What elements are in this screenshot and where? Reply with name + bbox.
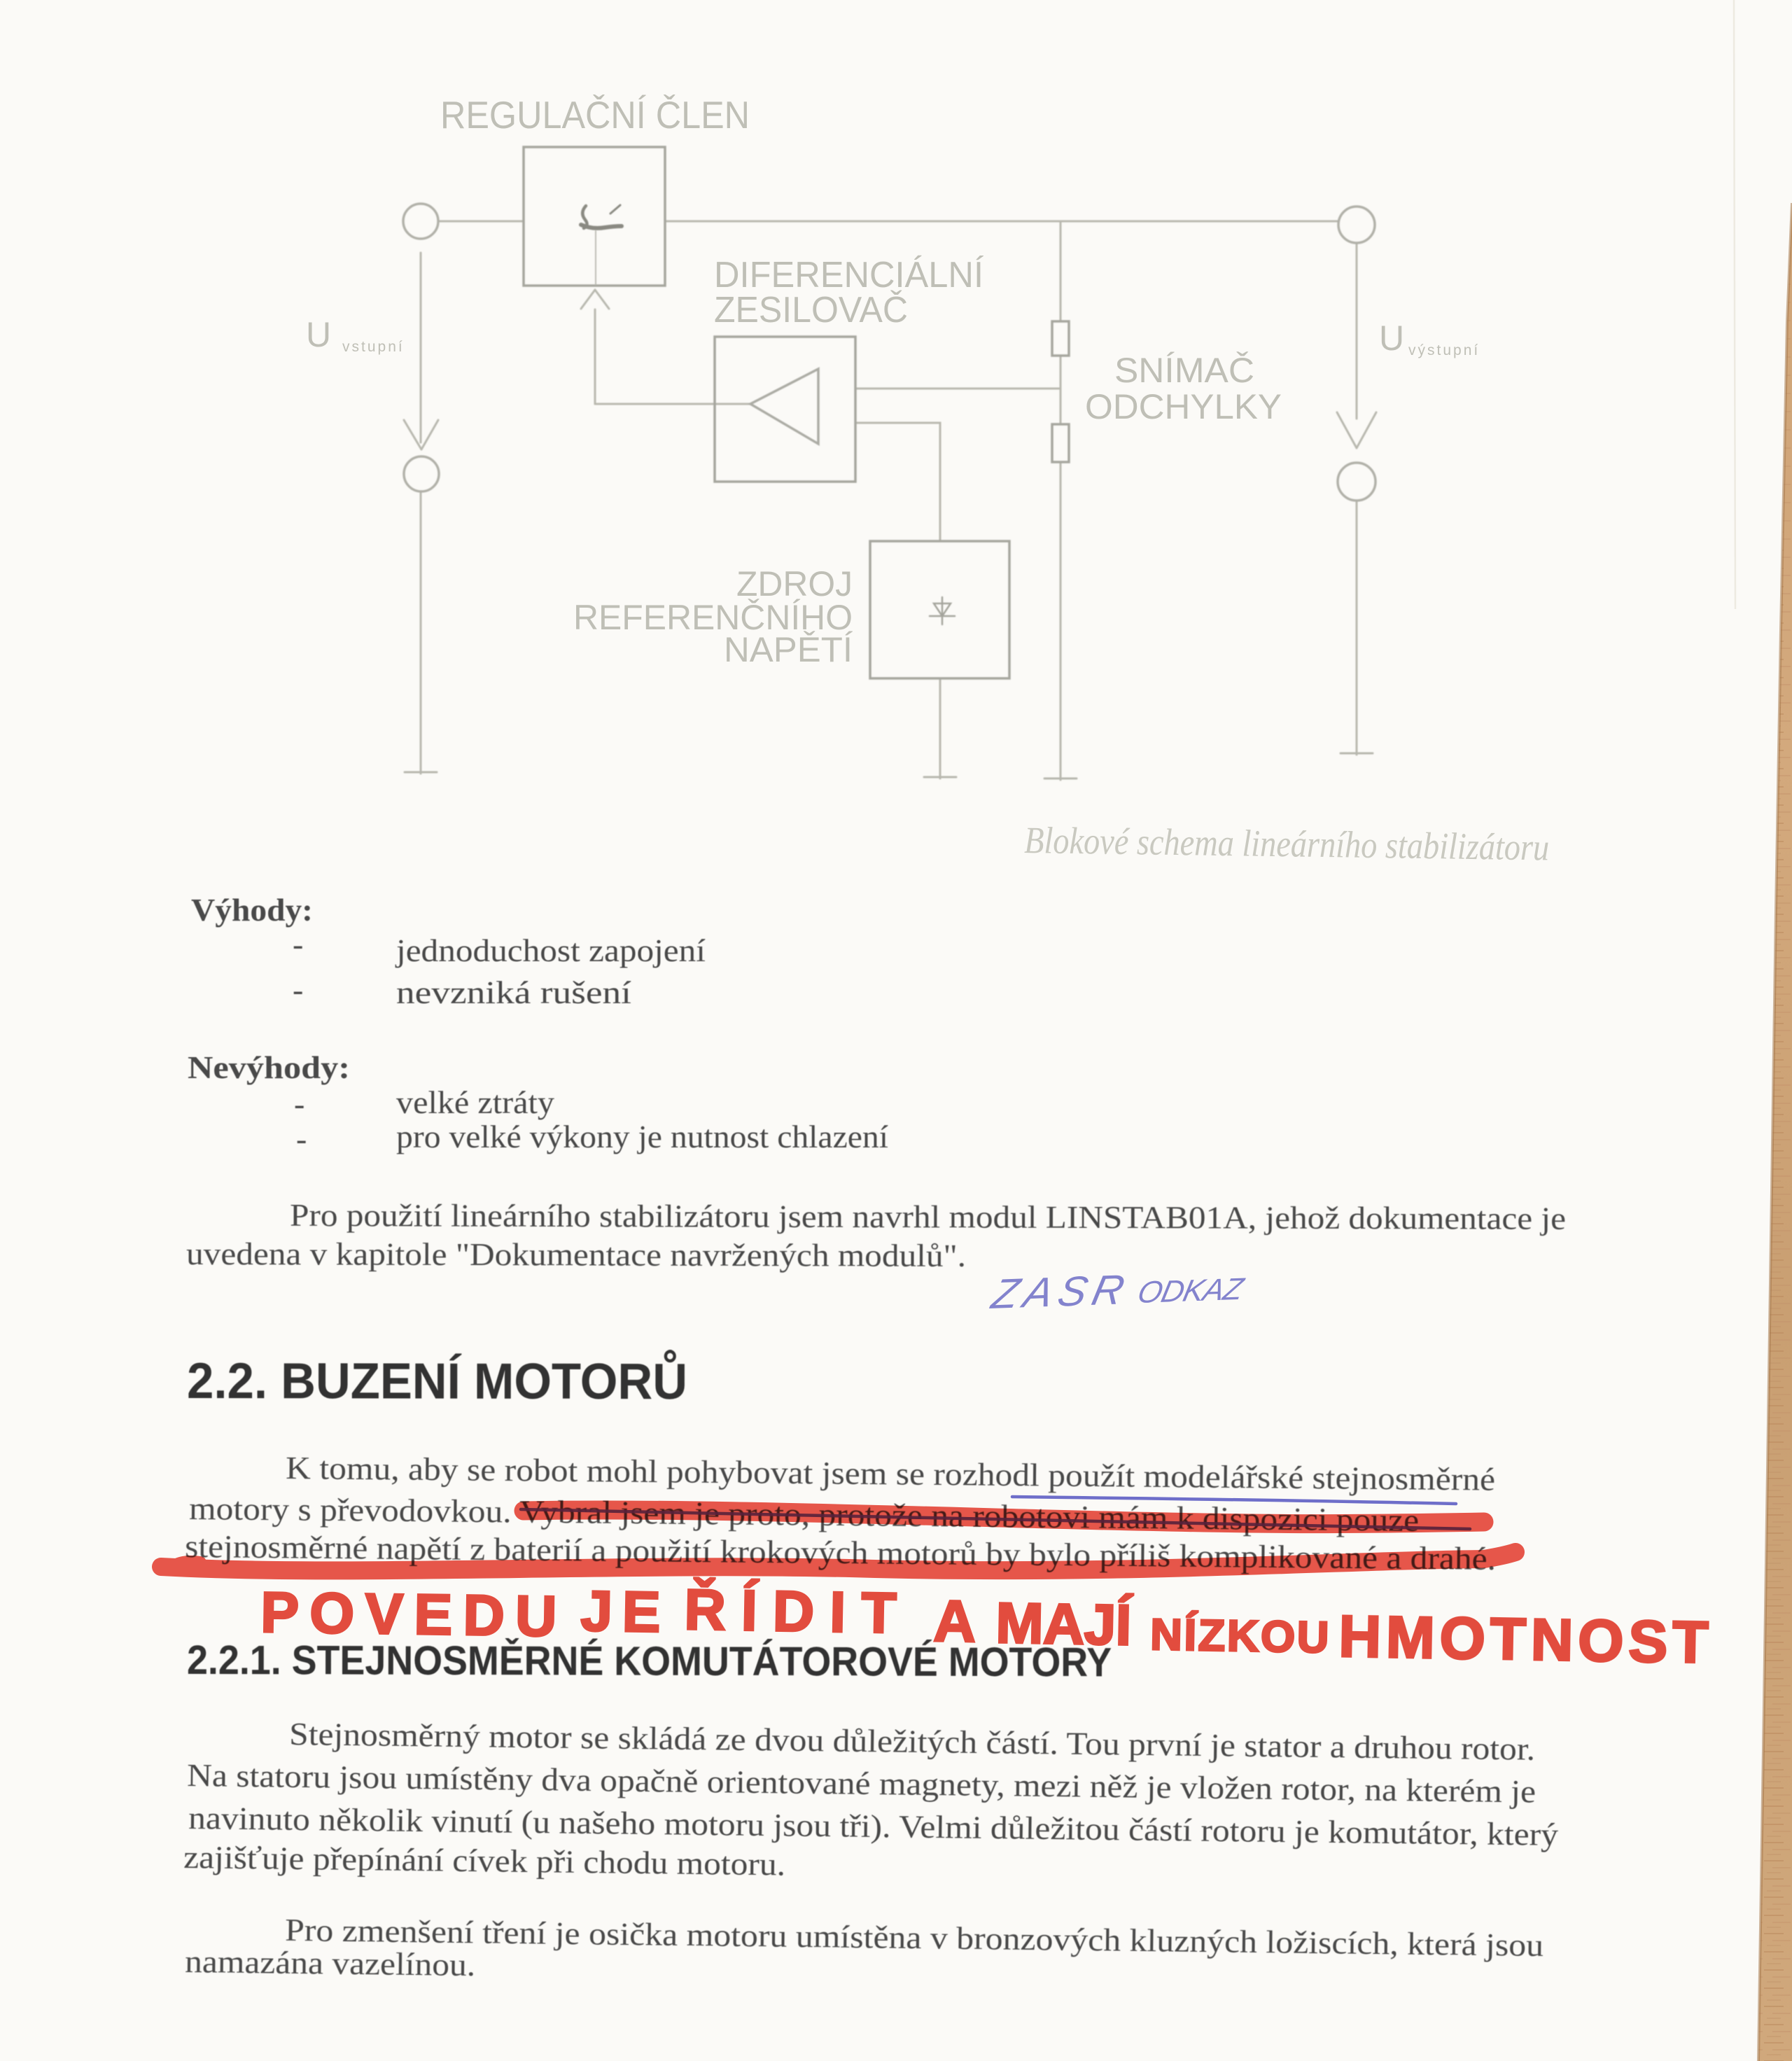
svg-text:vstupní: vstupní [342,339,405,355]
svg-text:pro velké výkony je nutnost ch: pro velké výkony je nutnost chlazení [396,1119,888,1154]
svg-text:-: - [296,1121,307,1157]
svg-text:MAJÍ: MAJÍ [995,1591,1134,1657]
svg-text:-: - [293,926,303,962]
svg-text:Pro použití lineárního stabili: Pro použití lineárního stabilizátoru jse… [290,1197,1566,1236]
svg-text:ODKAZ: ODKAZ [1135,1272,1247,1309]
svg-text:uvedena v kapitole "Dokumentac: uvedena v kapitole "Dokumentace navržený… [186,1236,966,1273]
svg-text:U: U [1379,319,1404,358]
svg-text:2.2. BUZENÍ MOTORŮ: 2.2. BUZENÍ MOTORŮ [187,1349,687,1410]
svg-text:Blokové schema lineárního stab: Blokové schema lineárního stabilizátoru [1024,819,1550,868]
svg-text:Výhody:: Výhody: [191,892,313,928]
svg-text:ZESILOVAČ: ZESILOVAČ [714,290,908,330]
svg-text:HMOTNOST: HMOTNOST [1338,1603,1709,1675]
svg-text:U: U [306,315,331,354]
svg-text:-: - [294,1086,304,1122]
svg-text:velké ztráty: velké ztráty [396,1084,554,1120]
svg-text:NAPĚTÍ: NAPĚTÍ [724,630,853,669]
svg-text:A: A [933,1588,976,1654]
svg-text:NÍZKOU: NÍZKOU [1150,1610,1329,1662]
svg-text:namazána vazelínou.: namazána vazelínou. [185,1943,476,1983]
svg-text:ŘÍDIT: ŘÍDIT [684,1578,897,1645]
svg-text:výstupní: výstupní [1408,342,1480,358]
svg-text:zajišťuje přepínání cívek při: zajišťuje přepínání cívek při chodu moto… [183,1839,786,1882]
svg-text:Nevýhody:: Nevýhody: [188,1049,350,1085]
svg-text:REGULAČNÍ ČLEN: REGULAČNÍ ČLEN [440,93,750,137]
svg-text:-: - [293,972,303,1007]
svg-text:jednoduchost zapojení: jednoduchost zapojení [395,932,706,968]
svg-text:nevzniká rušení: nevzniká rušení [396,974,631,1010]
svg-text:ODCHYLKY: ODCHYLKY [1085,387,1282,426]
svg-text:SNÍMAČ: SNÍMAČ [1114,351,1254,390]
